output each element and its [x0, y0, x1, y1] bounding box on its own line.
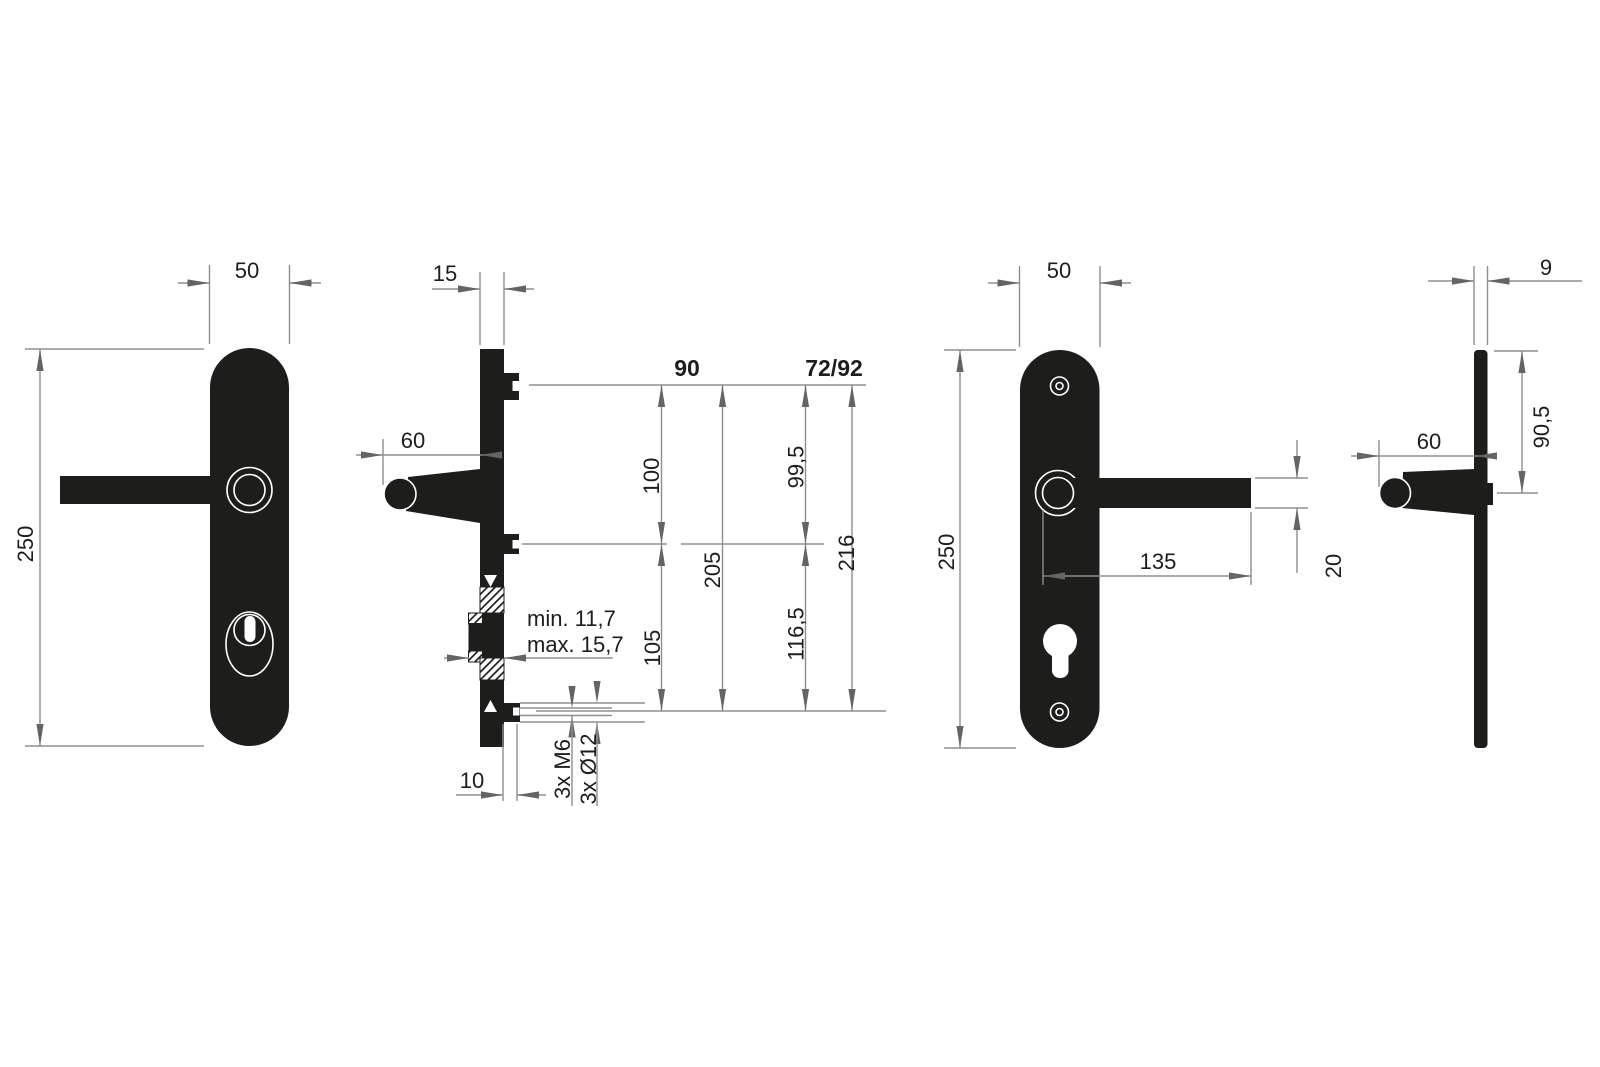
keyhole-slot — [245, 616, 256, 642]
hole-spec-label: 3x Ø12 — [576, 734, 601, 805]
dim-label: 216 — [834, 535, 859, 572]
spindle-lug — [1487, 483, 1493, 505]
plate-front-exterior — [210, 348, 289, 746]
handle-knob-profile — [1380, 478, 1411, 509]
dim-label: 250 — [13, 526, 38, 563]
dim-label: 60 — [401, 428, 425, 453]
cylinder-protrusion — [469, 623, 504, 652]
plate-section-bar — [480, 349, 504, 747]
dim-label: 135 — [1140, 549, 1177, 574]
thread-spec-label: 3x M6 — [550, 739, 575, 799]
dim-label: 60 — [1417, 429, 1441, 454]
dim-label: 116,5 — [784, 607, 809, 660]
column-header-90: 90 — [674, 355, 700, 381]
dim-v1-height: 250 — [13, 349, 204, 746]
dim-label: 15 — [433, 261, 457, 286]
dim-v2-fixing-specs: 3x M6 3x Ø12 — [520, 681, 645, 806]
dim-v1-width: 50 — [178, 258, 321, 344]
plate-profile-bar — [1474, 350, 1488, 748]
view-side-profile: 9 90,5 60 — [1351, 255, 1582, 748]
dim-label: 20 — [1321, 554, 1346, 578]
dim-label-max: max. 15,7 — [527, 632, 624, 657]
dim-label: 250 — [934, 534, 959, 571]
handle-knob-side — [384, 478, 416, 510]
dim-label: 90,5 — [1529, 406, 1554, 449]
dim-label: 50 — [235, 258, 259, 283]
lever-handle-side — [406, 469, 480, 523]
dim-label: 9 — [1540, 255, 1552, 280]
dim-v3-handle-thickness: 20 — [1255, 440, 1346, 578]
drawing-canvas: 50 250 — [0, 0, 1600, 1067]
hatched-section-upper — [480, 587, 504, 613]
dim-v3-width: 50 — [988, 258, 1131, 347]
hatched-step-top — [469, 613, 483, 624]
dim-v3-height: 250 — [934, 350, 1016, 748]
dim-label: 100 — [639, 458, 664, 495]
lever-handle-front — [60, 476, 240, 504]
dim-v2-thickness: 15 — [432, 261, 534, 345]
dim-v4-thickness: 9 — [1428, 255, 1582, 345]
hatched-section-lower — [480, 658, 504, 680]
column-header-72-92: 72/92 — [805, 355, 863, 381]
view-front-interior: 50 250 135 20 — [934, 258, 1346, 748]
lever-handle-front — [1058, 478, 1251, 508]
dim-label: 10 — [460, 768, 484, 793]
view-front-exterior: 50 250 — [13, 258, 321, 746]
dim-label-min: min. 11,7 — [527, 606, 616, 631]
lever-handle-profile — [1402, 469, 1474, 515]
view-side-section: 15 60 90 72/92 100 105 205 — [356, 261, 886, 806]
dim-v4-top-to-handle: 90,5 — [1494, 351, 1554, 493]
dim-label: 50 — [1047, 258, 1071, 283]
plate-front-interior — [1020, 350, 1100, 748]
dim-label: 205 — [700, 552, 725, 589]
technical-drawing-page: 50 250 — [0, 0, 1600, 1067]
dim-label: 99,5 — [784, 446, 809, 489]
dim-label: 105 — [640, 630, 665, 667]
